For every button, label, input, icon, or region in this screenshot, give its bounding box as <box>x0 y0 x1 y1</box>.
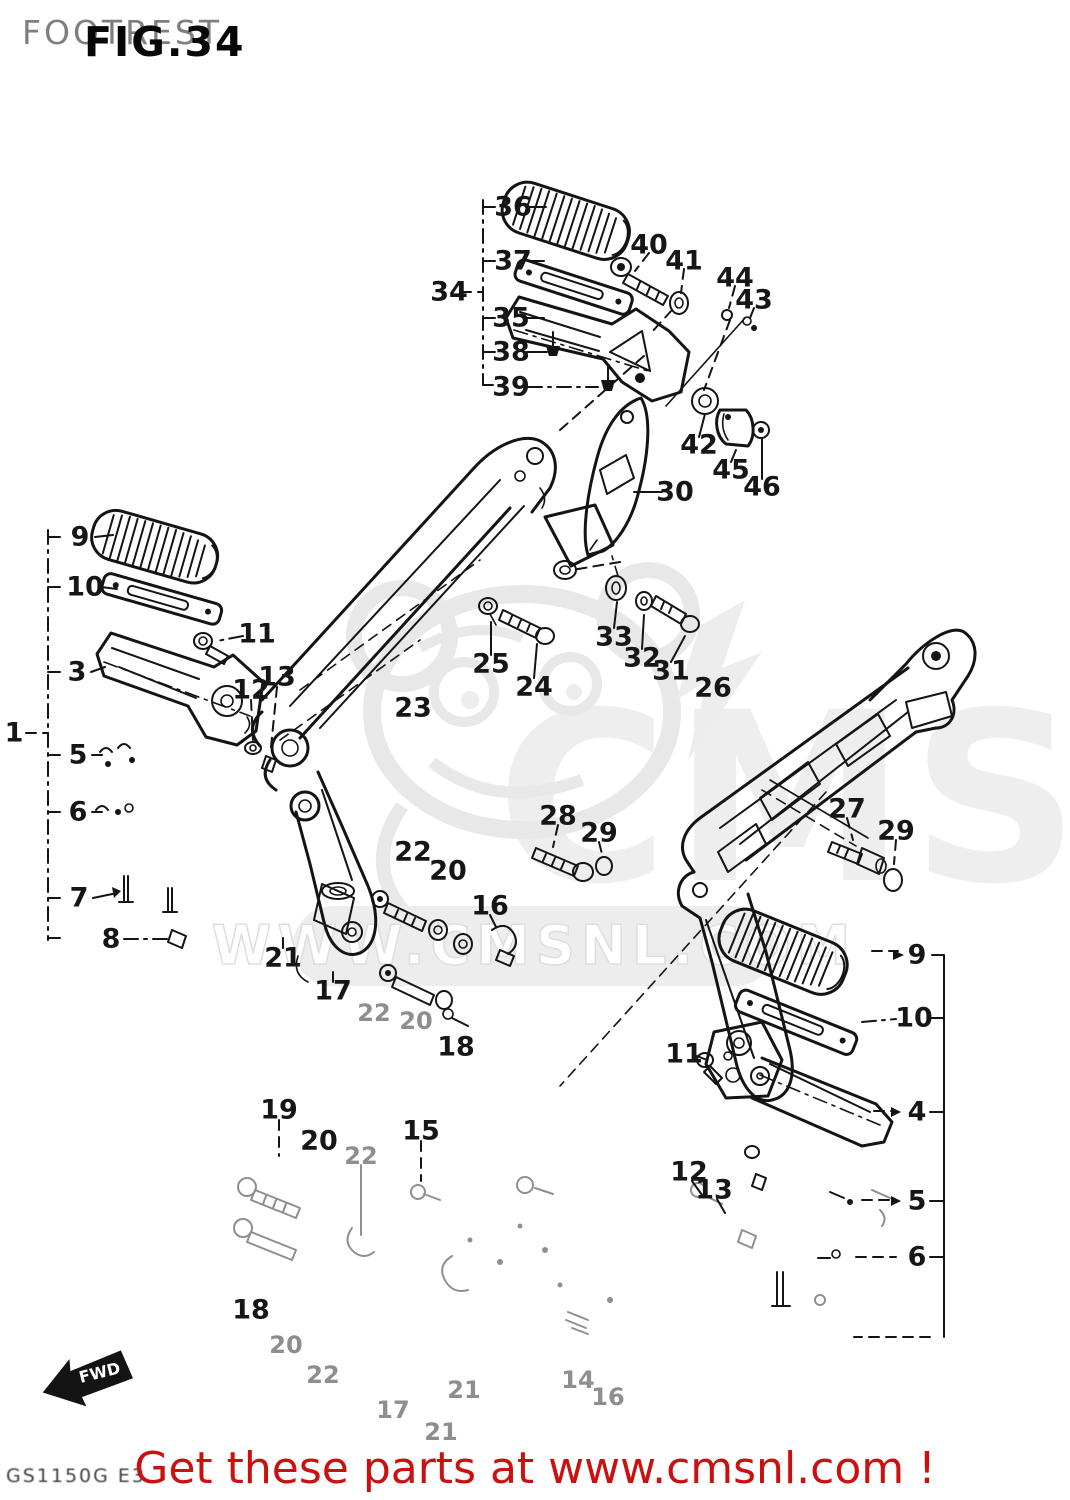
part-label-3: 3 <box>68 657 87 688</box>
part-35-footrest-bar <box>506 297 689 401</box>
part-label-11: 11 <box>238 619 276 650</box>
part-10-pad-plate-right <box>733 988 858 1057</box>
watermark-site-text: WWW.CMSNL.COM <box>212 914 856 977</box>
part-label-5: 5 <box>69 740 88 771</box>
part-label-21: 21 <box>264 943 302 974</box>
mascot-pupil-right <box>566 684 582 700</box>
part-label-38: 38 <box>492 337 530 368</box>
part-label-28: 28 <box>539 801 577 832</box>
part-label-20: 20 <box>399 1007 432 1035</box>
part-label-36: 36 <box>494 192 532 223</box>
model-code: GS1150G E3 <box>6 1465 146 1487</box>
fwd-arrow: FWD <box>36 1345 136 1416</box>
part-label-20: 20 <box>300 1126 338 1157</box>
header: FOOTREST FIG.34 <box>22 13 246 66</box>
part-label-37: 37 <box>494 246 532 277</box>
part-label-6: 6 <box>69 797 88 828</box>
part-8-piece-left <box>168 930 186 948</box>
part-label-23: 23 <box>394 693 432 724</box>
part-label-6: 6 <box>908 1242 927 1273</box>
part-label-4: 4 <box>908 1097 927 1128</box>
part-label-7: 7 <box>70 883 89 914</box>
part-label-15: 15 <box>402 1116 440 1147</box>
part-46-nut <box>753 422 769 438</box>
mascot-brow <box>420 630 522 648</box>
part-label-19: 19 <box>260 1095 298 1126</box>
part-label-10: 10 <box>66 572 104 603</box>
part-label-24: 24 <box>515 672 553 703</box>
part-label-46: 46 <box>743 472 781 503</box>
part-label-31: 31 <box>652 656 690 687</box>
right-lower-pin <box>772 1272 790 1306</box>
figure-number: FIG.34 <box>84 18 246 66</box>
part-label-8: 8 <box>102 924 121 955</box>
part-label-11: 11 <box>665 1039 703 1070</box>
parts-diagram-canvas: CMS WWW.CMSNL.COM <box>0 0 1070 1500</box>
part-11-bolt-left <box>194 633 228 664</box>
part-5-clip-right <box>830 1192 853 1205</box>
part-label-35: 35 <box>492 303 530 334</box>
part-label-22: 22 <box>344 1142 377 1170</box>
part-label-16: 16 <box>471 891 509 922</box>
mascot-pupil-left <box>461 691 479 709</box>
part-24-bolt <box>499 610 554 644</box>
part-5-clip-left <box>100 744 135 767</box>
part-label-41: 41 <box>665 246 703 277</box>
part-30-pivot-arm <box>585 398 648 555</box>
part-label-20: 20 <box>269 1331 302 1359</box>
part-label-34: 34 <box>430 277 468 308</box>
part-label-10: 10 <box>895 1003 933 1034</box>
part-label-22: 22 <box>306 1361 339 1389</box>
part-label-18: 18 <box>232 1295 270 1326</box>
part-label-20: 20 <box>429 856 467 887</box>
part-7-pins-left <box>119 876 177 912</box>
cms-watermark: CMS WWW.CMSNL.COM <box>212 570 1070 986</box>
part-13-pin-right <box>752 1174 766 1190</box>
part-6-clip-right <box>818 1250 840 1258</box>
part-label-18: 18 <box>437 1032 475 1063</box>
part-40-bolt <box>611 258 668 305</box>
part-label-13: 13 <box>695 1175 733 1206</box>
part-label-21: 21 <box>447 1376 480 1404</box>
part-label-30: 30 <box>656 477 694 508</box>
part-44-ball <box>722 310 732 320</box>
part-label-29: 29 <box>877 816 915 847</box>
part-label-1: 1 <box>5 718 24 749</box>
part-label-21: 21 <box>424 1418 457 1446</box>
part-label-9: 9 <box>71 522 90 553</box>
part-label-17: 17 <box>376 1396 409 1424</box>
part-label-26: 26 <box>694 673 732 704</box>
part-label-22: 22 <box>357 999 390 1027</box>
part-45-spacer-block <box>717 410 753 446</box>
part-4-footrest-bar-right <box>706 1022 892 1146</box>
part-6-clip-left <box>96 804 133 815</box>
part-label-27: 27 <box>828 794 866 825</box>
part-label-12: 12 <box>232 675 270 706</box>
part-label-9: 9 <box>908 940 927 971</box>
faint-lower-assembly <box>234 1165 890 1334</box>
part-label-40: 40 <box>630 230 668 261</box>
part-32-nut <box>636 592 652 610</box>
part-label-14: 14 <box>561 1366 594 1394</box>
part-label-5: 5 <box>908 1186 927 1217</box>
cmsnl-promo-link[interactable]: Get these parts at www.cmsnl.com ! <box>134 1443 936 1494</box>
part-42-washer <box>692 388 718 414</box>
part-12-nut-right <box>745 1146 759 1158</box>
part-label-25: 25 <box>472 649 510 680</box>
part-label-22: 22 <box>394 837 432 868</box>
footer: GS1150G E3 Get these parts at www.cmsnl.… <box>6 1443 936 1494</box>
part-label-39: 39 <box>492 372 530 403</box>
part-label-16: 16 <box>591 1383 624 1411</box>
part-label-17: 17 <box>314 976 352 1007</box>
part-label-43: 43 <box>735 285 773 316</box>
part-label-29: 29 <box>580 818 618 849</box>
